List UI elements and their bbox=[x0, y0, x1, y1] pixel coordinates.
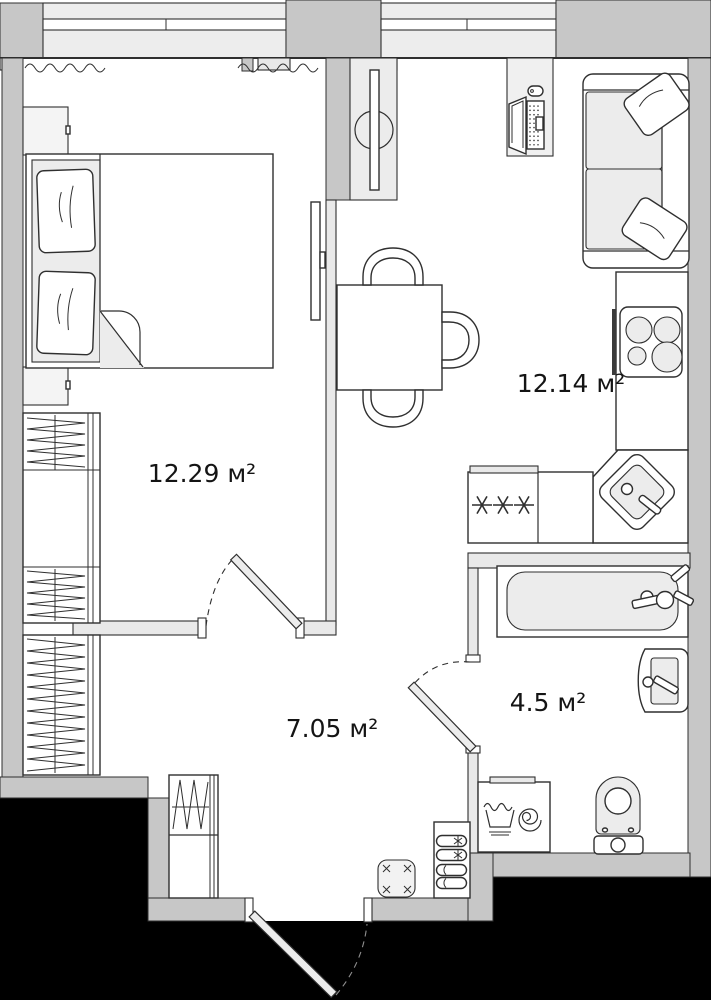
burner bbox=[654, 317, 680, 343]
wardrobe-bedroom bbox=[23, 413, 100, 623]
burner bbox=[652, 342, 682, 372]
pillow bbox=[37, 169, 96, 253]
wall-bedroom-living bbox=[326, 200, 336, 625]
faucet bbox=[622, 484, 633, 495]
shoe bbox=[437, 850, 467, 861]
apartment-floor-plan: 12.29 м² bbox=[0, 0, 711, 1000]
burner bbox=[628, 347, 646, 365]
tv bbox=[370, 70, 379, 190]
wall-bathroom-west bbox=[468, 568, 478, 655]
basin-faucet bbox=[643, 677, 653, 687]
wall-block bbox=[556, 0, 711, 58]
pouf bbox=[378, 860, 415, 897]
window-frame bbox=[43, 19, 286, 30]
nightstand-top bbox=[23, 107, 70, 155]
desk bbox=[507, 58, 553, 156]
laptop-icon bbox=[509, 97, 544, 154]
double-bed bbox=[26, 154, 273, 368]
wall-block bbox=[286, 0, 381, 58]
bathtub bbox=[497, 564, 694, 637]
mouse-icon bbox=[528, 86, 543, 96]
fridge bbox=[468, 466, 593, 543]
toilet bbox=[594, 777, 643, 854]
pillow bbox=[37, 271, 96, 355]
kitchen-area-label: 12.14 м² bbox=[517, 369, 625, 398]
washing-machine bbox=[478, 777, 550, 852]
bedroom-area-label: 12.29 м² bbox=[148, 459, 256, 488]
burner bbox=[626, 317, 652, 343]
wash-basin bbox=[638, 649, 688, 712]
shoe bbox=[437, 865, 467, 876]
hallway-area-label: 7.05 м² bbox=[286, 714, 379, 743]
sofa bbox=[583, 70, 692, 268]
wall-block bbox=[0, 3, 43, 58]
floor-plan-drawing: 12.29 м² bbox=[0, 0, 711, 1000]
stove bbox=[612, 307, 682, 377]
wall-bedroom-living-top bbox=[326, 58, 350, 200]
wardrobe-hallway bbox=[23, 635, 100, 775]
dining-table bbox=[337, 285, 442, 390]
shoe-rack bbox=[434, 822, 470, 898]
shoe bbox=[437, 836, 467, 847]
nightstand-bottom bbox=[23, 367, 70, 405]
hallway-closet bbox=[169, 775, 218, 898]
window-frame bbox=[381, 19, 556, 30]
tv-stand bbox=[350, 58, 397, 200]
bathroom-area-label: 4.5 м² bbox=[510, 688, 587, 717]
shoe bbox=[437, 878, 467, 889]
